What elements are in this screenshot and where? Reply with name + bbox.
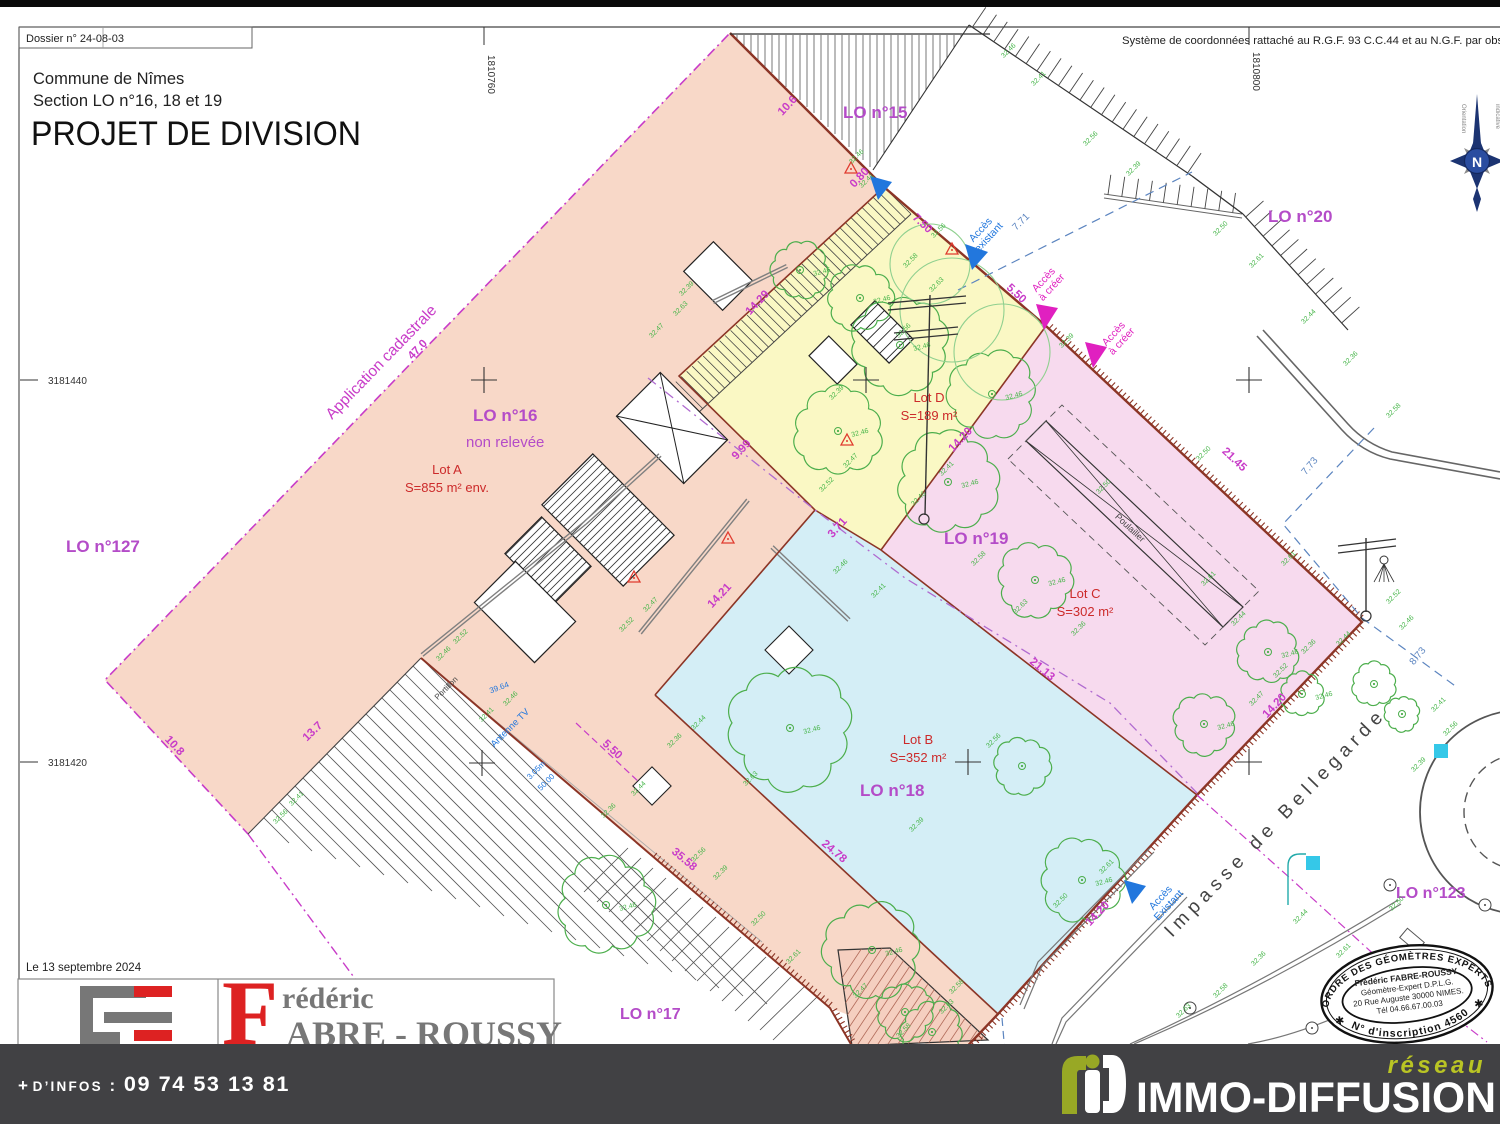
svg-text:S=302 m²: S=302 m² [1057,604,1114,619]
svg-text:50.00: 50.00 [536,772,557,793]
svg-text:32.56: 32.56 [272,808,289,825]
svg-text:7.71: 7.71 [1010,211,1032,233]
svg-text:S=189 m²: S=189 m² [901,408,958,423]
svg-text:✱: ✱ [1473,998,1484,1011]
svg-text:non relevée: non relevée [466,434,544,451]
svg-text:32.56: 32.56 [1442,720,1459,737]
svg-text:32.44: 32.44 [1292,908,1309,925]
svg-text:7.73: 7.73 [1300,455,1321,477]
svg-text:IMMO-DIFFUSION: IMMO-DIFFUSION [1136,1074,1496,1122]
svg-text:LO n°18: LO n°18 [860,781,924,800]
svg-text:LO n°15: LO n°15 [843,103,907,122]
svg-text:32.44: 32.44 [1300,308,1317,325]
svg-text:32.36: 32.36 [1342,350,1359,367]
svg-text:3181420: 3181420 [48,758,87,769]
svg-text:Section LO n°16, 18 et 19: Section LO n°16, 18 et 19 [33,92,222,110]
svg-text:indicative: indicative [1494,104,1500,130]
svg-text:32.61: 32.61 [1248,252,1265,269]
svg-text:32.41: 32.41 [288,790,305,807]
svg-text:32.50: 32.50 [1195,445,1212,462]
svg-text:32.41: 32.41 [1430,696,1447,713]
svg-text:Lot A: Lot A [432,462,462,477]
svg-text:32.46: 32.46 [619,902,638,913]
svg-text:rédéric: rédéric [282,982,374,1015]
svg-text:32.36: 32.36 [1250,950,1267,967]
svg-text:LO n°20: LO n°20 [1268,207,1332,226]
svg-text:réseau: réseau [1388,1052,1486,1079]
svg-text:1810760: 1810760 [485,55,496,94]
svg-text:Lot C: Lot C [1069,586,1100,601]
svg-text:Commune de Nîmes: Commune de Nîmes [33,70,184,88]
svg-text:32.41: 32.41 [1030,70,1047,87]
svg-text:Le 13 septembre 2024: Le 13 septembre 2024 [26,962,142,974]
svg-text:LO n°19: LO n°19 [944,529,1008,548]
svg-text:LO n°16: LO n°16 [473,406,537,425]
svg-text:3181440: 3181440 [48,376,87,387]
svg-text:N: N [1472,154,1482,170]
svg-text:32.52: 32.52 [1385,588,1402,605]
svg-text:Lot B: Lot B [903,732,933,747]
svg-text:32.50: 32.50 [1212,220,1229,237]
svg-text:32.56: 32.56 [1082,130,1099,147]
svg-text:Système de coordonnées rattach: Système de coordonnées rattaché au R.G.F… [1122,35,1500,47]
svg-text:LO n°17: LO n°17 [620,1006,681,1023]
svg-text:S=855 m² env.: S=855 m² env. [405,480,489,495]
svg-text:32.46: 32.46 [1000,42,1017,59]
svg-text:21.45: 21.45 [1219,446,1249,475]
svg-text:1810800: 1810800 [1250,52,1261,91]
svg-text:Lot D: Lot D [913,390,944,405]
svg-text:S=352 m²: S=352 m² [890,750,947,765]
svg-text:LO n°127: LO n°127 [66,537,140,556]
svg-text:32.39: 32.39 [1410,756,1427,773]
svg-text:Dossier n° 24-08-03: Dossier n° 24-08-03 [26,33,124,45]
svg-text:✱: ✱ [1335,1015,1346,1028]
svg-text:Orientation: Orientation [1460,104,1466,133]
svg-text:32.61: 32.61 [1335,942,1352,959]
svg-text:LO n°123: LO n°123 [1396,885,1466,902]
svg-text:32.50: 32.50 [1388,895,1405,912]
svg-text:32.39: 32.39 [1125,160,1142,177]
svg-text:32.58: 32.58 [1385,402,1402,419]
svg-text:PROJET DE DIVISION: PROJET DE DIVISION [31,115,361,153]
svg-text:32.46: 32.46 [1398,614,1415,631]
